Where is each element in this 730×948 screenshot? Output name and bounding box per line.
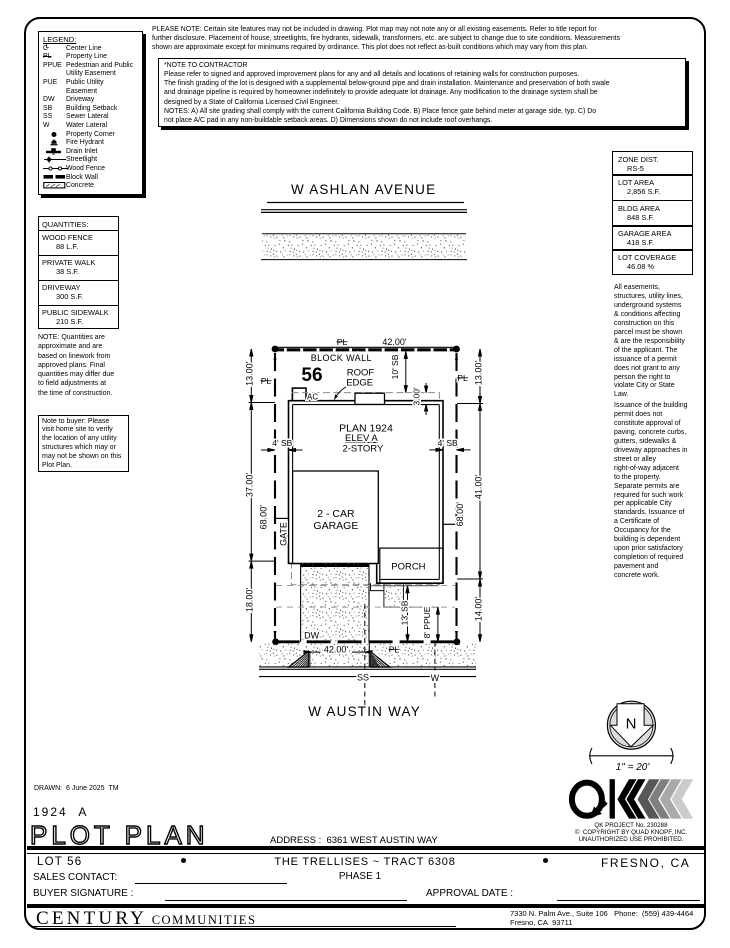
svg-text:4' SB: 4' SB	[438, 438, 458, 448]
svg-text:14.00': 14.00'	[474, 597, 484, 622]
svg-text:ELEV A: ELEV A	[345, 433, 378, 444]
svg-text:PORCH: PORCH	[391, 562, 425, 573]
svg-text:3.00': 3.00'	[412, 387, 422, 406]
svg-text:10' SB: 10' SB	[390, 354, 400, 379]
svg-text:42.00': 42.00'	[382, 337, 407, 347]
svg-text:N: N	[626, 716, 637, 733]
svg-text:42.00': 42.00'	[324, 645, 349, 655]
svg-text:13.00': 13.00'	[474, 361, 484, 386]
svg-text:SS: SS	[357, 673, 369, 683]
svg-text:GATE: GATE	[279, 522, 289, 546]
svg-text:13.00': 13.00'	[245, 361, 255, 386]
svg-text:2-STORY: 2-STORY	[342, 444, 383, 455]
svg-text:EDGE: EDGE	[346, 378, 373, 389]
svg-text:DW: DW	[304, 631, 319, 641]
svg-text:BLOCK WALL: BLOCK WALL	[311, 353, 372, 363]
svg-text:W: W	[431, 673, 440, 683]
svg-text:W AUSTIN WAY: W AUSTIN WAY	[308, 704, 421, 719]
svg-text:18.00': 18.00'	[245, 588, 255, 613]
svg-text:8' PPUE: 8' PPUE	[422, 606, 432, 638]
svg-text:1" = 20': 1" = 20'	[616, 762, 651, 773]
svg-text:AC: AC	[307, 393, 318, 402]
svg-text:68.00': 68.00'	[455, 502, 465, 527]
svg-text:56: 56	[301, 365, 322, 386]
svg-text:68.00': 68.00'	[259, 505, 269, 530]
svg-text:41.00': 41.00'	[474, 475, 484, 500]
svg-text:4' SB: 4' SB	[272, 438, 292, 448]
svg-text:13' SB: 13' SB	[400, 600, 410, 625]
svg-text:GARAGE: GARAGE	[313, 520, 358, 532]
svg-text:37.00': 37.00'	[245, 473, 255, 498]
svg-text:2 - CAR: 2 - CAR	[317, 508, 355, 520]
svg-text:W ASHLAN AVENUE: W ASHLAN AVENUE	[291, 182, 436, 197]
